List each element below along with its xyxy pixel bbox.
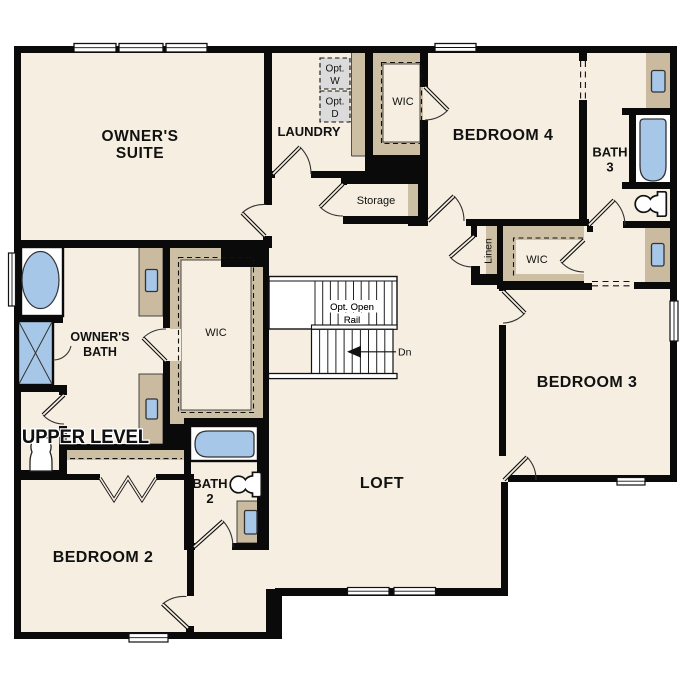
svg-text:3: 3 [606, 160, 613, 175]
svg-text:Dn: Dn [398, 347, 412, 359]
svg-text:LOFT: LOFT [360, 475, 404, 492]
svg-text:Opt. Open: Opt. Open [330, 302, 374, 313]
svg-text:BEDROOM 2: BEDROOM 2 [53, 549, 154, 566]
svg-text:Opt.: Opt. [326, 64, 345, 75]
svg-text:BATH: BATH [83, 345, 117, 359]
svg-text:OWNER'S: OWNER'S [70, 330, 129, 344]
svg-text:Rail: Rail [344, 315, 360, 326]
svg-text:Opt.: Opt. [326, 97, 345, 108]
svg-text:2: 2 [206, 491, 213, 506]
svg-text:W: W [330, 76, 340, 87]
svg-text:Storage: Storage [357, 195, 396, 207]
svg-text:UPPER LEVEL: UPPER LEVEL [22, 426, 149, 448]
svg-text:OWNER'S: OWNER'S [102, 128, 179, 145]
svg-text:Linen: Linen [483, 238, 495, 264]
svg-text:WIC: WIC [392, 96, 413, 108]
svg-text:D: D [331, 109, 338, 120]
svg-text:SUITE: SUITE [116, 145, 164, 162]
svg-text:BATH: BATH [592, 145, 627, 160]
svg-text:WIC: WIC [526, 254, 547, 266]
svg-text:WIC: WIC [205, 327, 226, 339]
svg-text:LAUNDRY: LAUNDRY [277, 124, 340, 139]
svg-text:BEDROOM 4: BEDROOM 4 [453, 127, 554, 144]
svg-text:BATH: BATH [192, 476, 227, 491]
svg-text:BEDROOM 3: BEDROOM 3 [537, 374, 638, 391]
